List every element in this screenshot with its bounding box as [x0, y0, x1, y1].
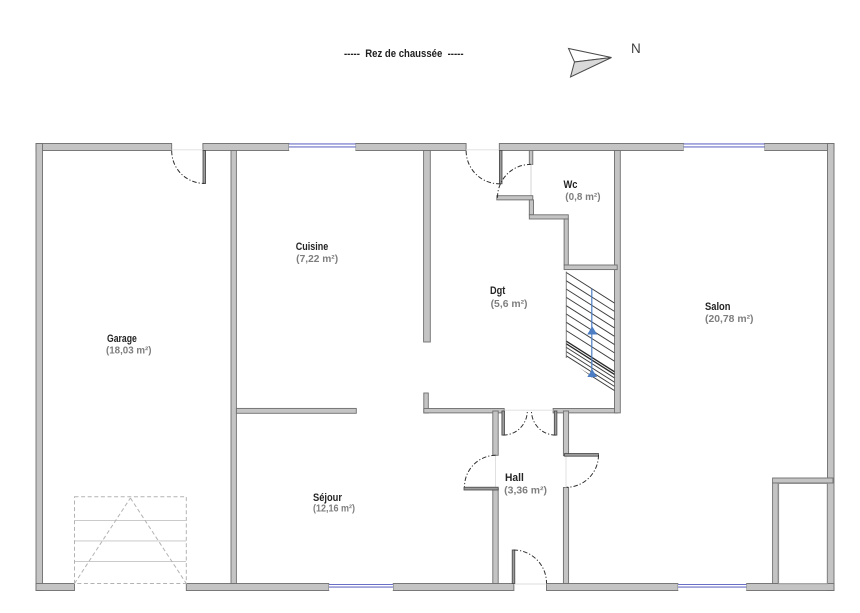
- svg-text:Hall: Hall: [505, 472, 524, 484]
- svg-text:N: N: [631, 41, 641, 56]
- svg-text:Dgt: Dgt: [490, 285, 506, 297]
- svg-text:(12,16 m²): (12,16 m²): [313, 504, 355, 515]
- svg-text:(20,78 m²): (20,78 m²): [705, 314, 754, 325]
- svg-text:(7,22 m²): (7,22 m²): [296, 254, 338, 265]
- svg-text:(3,36 m²): (3,36 m²): [504, 486, 547, 497]
- svg-text:(18,03 m²): (18,03 m²): [106, 345, 152, 356]
- svg-text:Salon: Salon: [705, 301, 731, 313]
- svg-text:Wc: Wc: [564, 179, 578, 191]
- svg-text:(0,8 m²): (0,8 m²): [565, 192, 600, 203]
- svg-text:Séjour: Séjour: [313, 492, 343, 504]
- svg-text:(5,6 m²): (5,6 m²): [491, 299, 528, 310]
- svg-text:Cuisine: Cuisine: [296, 241, 329, 253]
- svg-text:Garage: Garage: [107, 333, 137, 345]
- svg-text:----- Rez de chaussée -----: ----- Rez de chaussée -----: [344, 48, 464, 60]
